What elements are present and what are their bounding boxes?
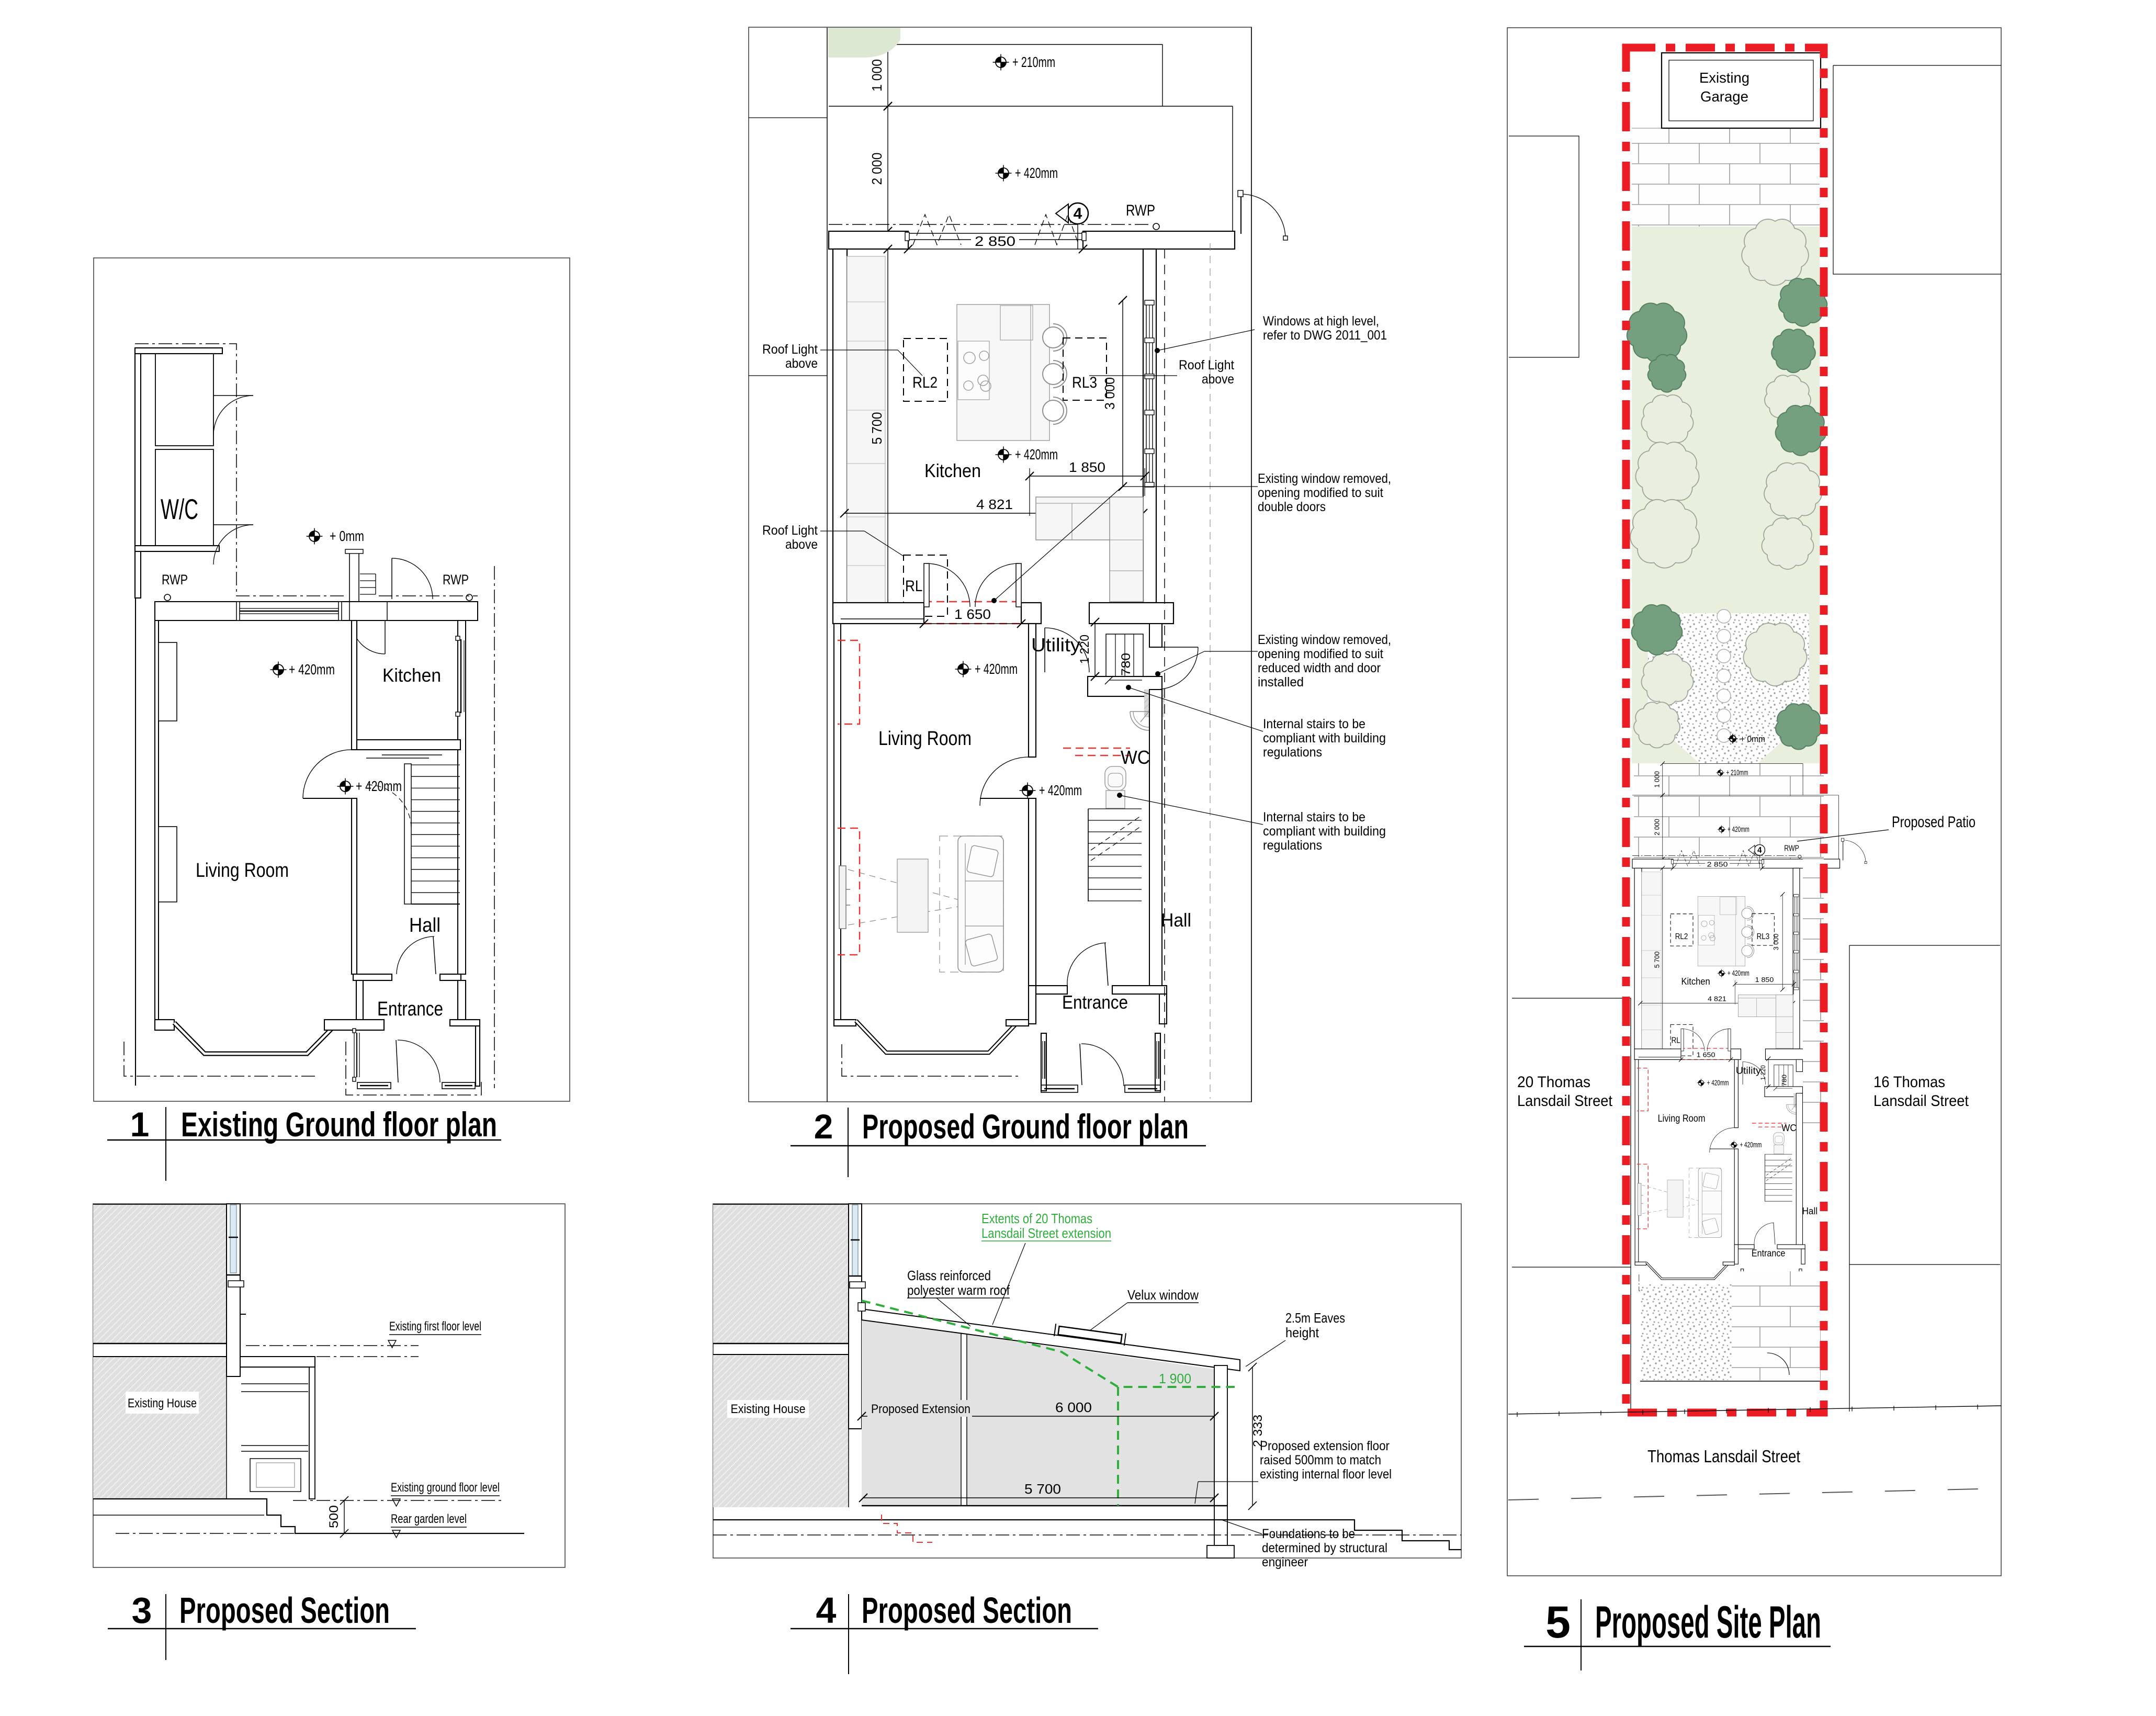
svg-text:Lansdail Street: Lansdail Street <box>1517 1092 1613 1110</box>
svg-text:Entrance: Entrance <box>1062 991 1128 1013</box>
svg-text:above: above <box>785 356 818 371</box>
svg-text:refer to DWG 2011_001: refer to DWG 2011_001 <box>1263 328 1387 343</box>
svg-text:2.5m Eaves: 2.5m Eaves <box>1285 1310 1345 1326</box>
svg-text:compliant with building: compliant with building <box>1263 824 1386 839</box>
svg-text:Internal stairs to be: Internal stairs to be <box>1263 717 1365 731</box>
svg-text:1 850: 1 850 <box>1069 459 1105 475</box>
svg-text:Proposed Site Plan: Proposed Site Plan <box>1595 1597 1821 1647</box>
svg-text:raised 500mm to match: raised 500mm to match <box>1260 1453 1381 1467</box>
svg-text:Entrance: Entrance <box>377 998 443 1020</box>
svg-text:+ 420mm: + 420mm <box>975 661 1018 677</box>
svg-text:Living Room: Living Room <box>196 860 289 882</box>
svg-text:Velux window: Velux window <box>1127 1287 1199 1303</box>
svg-text:1 900: 1 900 <box>1159 1371 1191 1386</box>
svg-text:2: 2 <box>814 1107 833 1146</box>
svg-text:Lansdail Street: Lansdail Street <box>1873 1092 1969 1110</box>
svg-text:3 000: 3 000 <box>1102 377 1117 410</box>
svg-text:W/C: W/C <box>161 493 198 525</box>
svg-text:Proposed extension floor: Proposed extension floor <box>1260 1439 1390 1453</box>
svg-text:opening modified to suit: opening modified to suit <box>1258 486 1383 500</box>
svg-text:reduced width and door: reduced width and door <box>1258 661 1381 675</box>
svg-text:RL2: RL2 <box>912 374 938 391</box>
svg-text:Lansdail Street extension: Lansdail Street extension <box>981 1225 1111 1241</box>
svg-text:Living Room: Living Room <box>878 728 972 750</box>
svg-text:Hall: Hall <box>409 915 441 936</box>
svg-text:Windows at high level,: Windows at high level, <box>1263 314 1379 329</box>
svg-text:Roof Light: Roof Light <box>762 342 818 357</box>
svg-text:Kitchen: Kitchen <box>924 460 981 481</box>
svg-text:Proposed Section: Proposed Section <box>179 1590 390 1631</box>
svg-text:1: 1 <box>130 1105 150 1144</box>
svg-text:Extents of 20 Thomas: Extents of 20 Thomas <box>981 1211 1092 1226</box>
svg-text:+ 420mm: + 420mm <box>289 661 335 678</box>
svg-text:+ 420mm: + 420mm <box>1015 165 1058 181</box>
svg-text:6 000: 6 000 <box>1055 1399 1092 1415</box>
svg-text:5 700: 5 700 <box>1024 1481 1061 1497</box>
svg-text:installed: installed <box>1258 675 1304 690</box>
svg-text:determined by structural: determined by structural <box>1262 1541 1387 1555</box>
svg-text:Roof Light: Roof Light <box>762 523 818 538</box>
svg-text:Kitchen: Kitchen <box>382 664 441 686</box>
svg-text:5: 5 <box>1545 1597 1571 1647</box>
svg-text:5 700: 5 700 <box>869 412 885 445</box>
svg-text:+ 420mm: + 420mm <box>1015 446 1058 462</box>
svg-text:20 Thomas: 20 Thomas <box>1517 1074 1590 1091</box>
svg-text:Proposed Section: Proposed Section <box>862 1590 1072 1631</box>
svg-text:Foundations to be: Foundations to be <box>1262 1527 1355 1541</box>
svg-text:1 650: 1 650 <box>954 606 991 622</box>
svg-text:Existing House: Existing House <box>128 1396 197 1410</box>
svg-text:above: above <box>1202 372 1234 387</box>
svg-text:above: above <box>785 537 818 552</box>
svg-text:height: height <box>1285 1325 1319 1340</box>
svg-text:780: 780 <box>1119 653 1133 676</box>
svg-text:4: 4 <box>816 1590 837 1631</box>
svg-text:2 850: 2 850 <box>975 233 1015 249</box>
svg-text:Roof Light: Roof Light <box>1179 358 1234 372</box>
svg-text:+ 0mm: + 0mm <box>1740 734 1765 744</box>
svg-text:Internal stairs to be: Internal stairs to be <box>1263 810 1365 825</box>
svg-text:+ 210mm: + 210mm <box>1012 54 1055 70</box>
svg-text:polyester warm roof: polyester warm roof <box>907 1282 1010 1298</box>
svg-text:Existing window removed,: Existing window removed, <box>1258 633 1391 647</box>
svg-text:existing internal floor level: existing internal floor level <box>1260 1467 1392 1482</box>
svg-text:RL3: RL3 <box>1072 374 1097 391</box>
svg-text:16 Thomas: 16 Thomas <box>1873 1074 1945 1091</box>
svg-text:compliant with building: compliant with building <box>1263 731 1386 746</box>
svg-text:4 821: 4 821 <box>976 496 1013 512</box>
svg-text:Glass reinforced: Glass reinforced <box>907 1268 991 1283</box>
svg-text:Proposed Extension: Proposed Extension <box>871 1402 970 1416</box>
svg-text:Existing House: Existing House <box>731 1402 806 1416</box>
svg-text:opening modified to suit: opening modified to suit <box>1258 647 1383 661</box>
svg-text:+ 420mm: + 420mm <box>1039 782 1082 798</box>
svg-text:Existing first floor level: Existing first floor level <box>389 1319 481 1334</box>
svg-text:Existing window removed,: Existing window removed, <box>1258 471 1391 486</box>
svg-text:Existing: Existing <box>1699 70 1749 86</box>
svg-text:Hall: Hall <box>1161 909 1191 931</box>
svg-text:1 220: 1 220 <box>1078 635 1092 664</box>
svg-text:Existing ground floor level: Existing ground floor level <box>391 1481 500 1495</box>
svg-text:4: 4 <box>1074 205 1082 222</box>
svg-text:WC: WC <box>1121 747 1150 768</box>
svg-text:Garage: Garage <box>1700 88 1748 105</box>
svg-text:Thomas Lansdail Street: Thomas Lansdail Street <box>1647 1447 1800 1466</box>
svg-text:2 000: 2 000 <box>869 153 885 185</box>
svg-text:Proposed Patio: Proposed Patio <box>1892 814 1976 831</box>
svg-text:Existing Ground floor plan: Existing Ground floor plan <box>181 1105 497 1144</box>
svg-text:RWP: RWP <box>443 572 469 588</box>
svg-text:Proposed Ground floor plan: Proposed Ground floor plan <box>862 1107 1189 1146</box>
svg-text:3: 3 <box>132 1590 152 1631</box>
svg-text:engineer: engineer <box>1262 1555 1308 1570</box>
svg-text:1 000: 1 000 <box>869 59 885 92</box>
svg-text:regulations: regulations <box>1263 745 1322 760</box>
svg-text:RWP: RWP <box>1126 202 1155 219</box>
svg-text:+ 0mm: + 0mm <box>330 528 364 544</box>
svg-text:RWP: RWP <box>162 572 188 588</box>
svg-text:Utility: Utility <box>1031 634 1080 656</box>
svg-text:500: 500 <box>327 1505 341 1528</box>
svg-text:regulations: regulations <box>1263 838 1322 853</box>
svg-text:double doors: double doors <box>1258 500 1326 514</box>
svg-text:Rear garden level: Rear garden level <box>391 1512 467 1526</box>
